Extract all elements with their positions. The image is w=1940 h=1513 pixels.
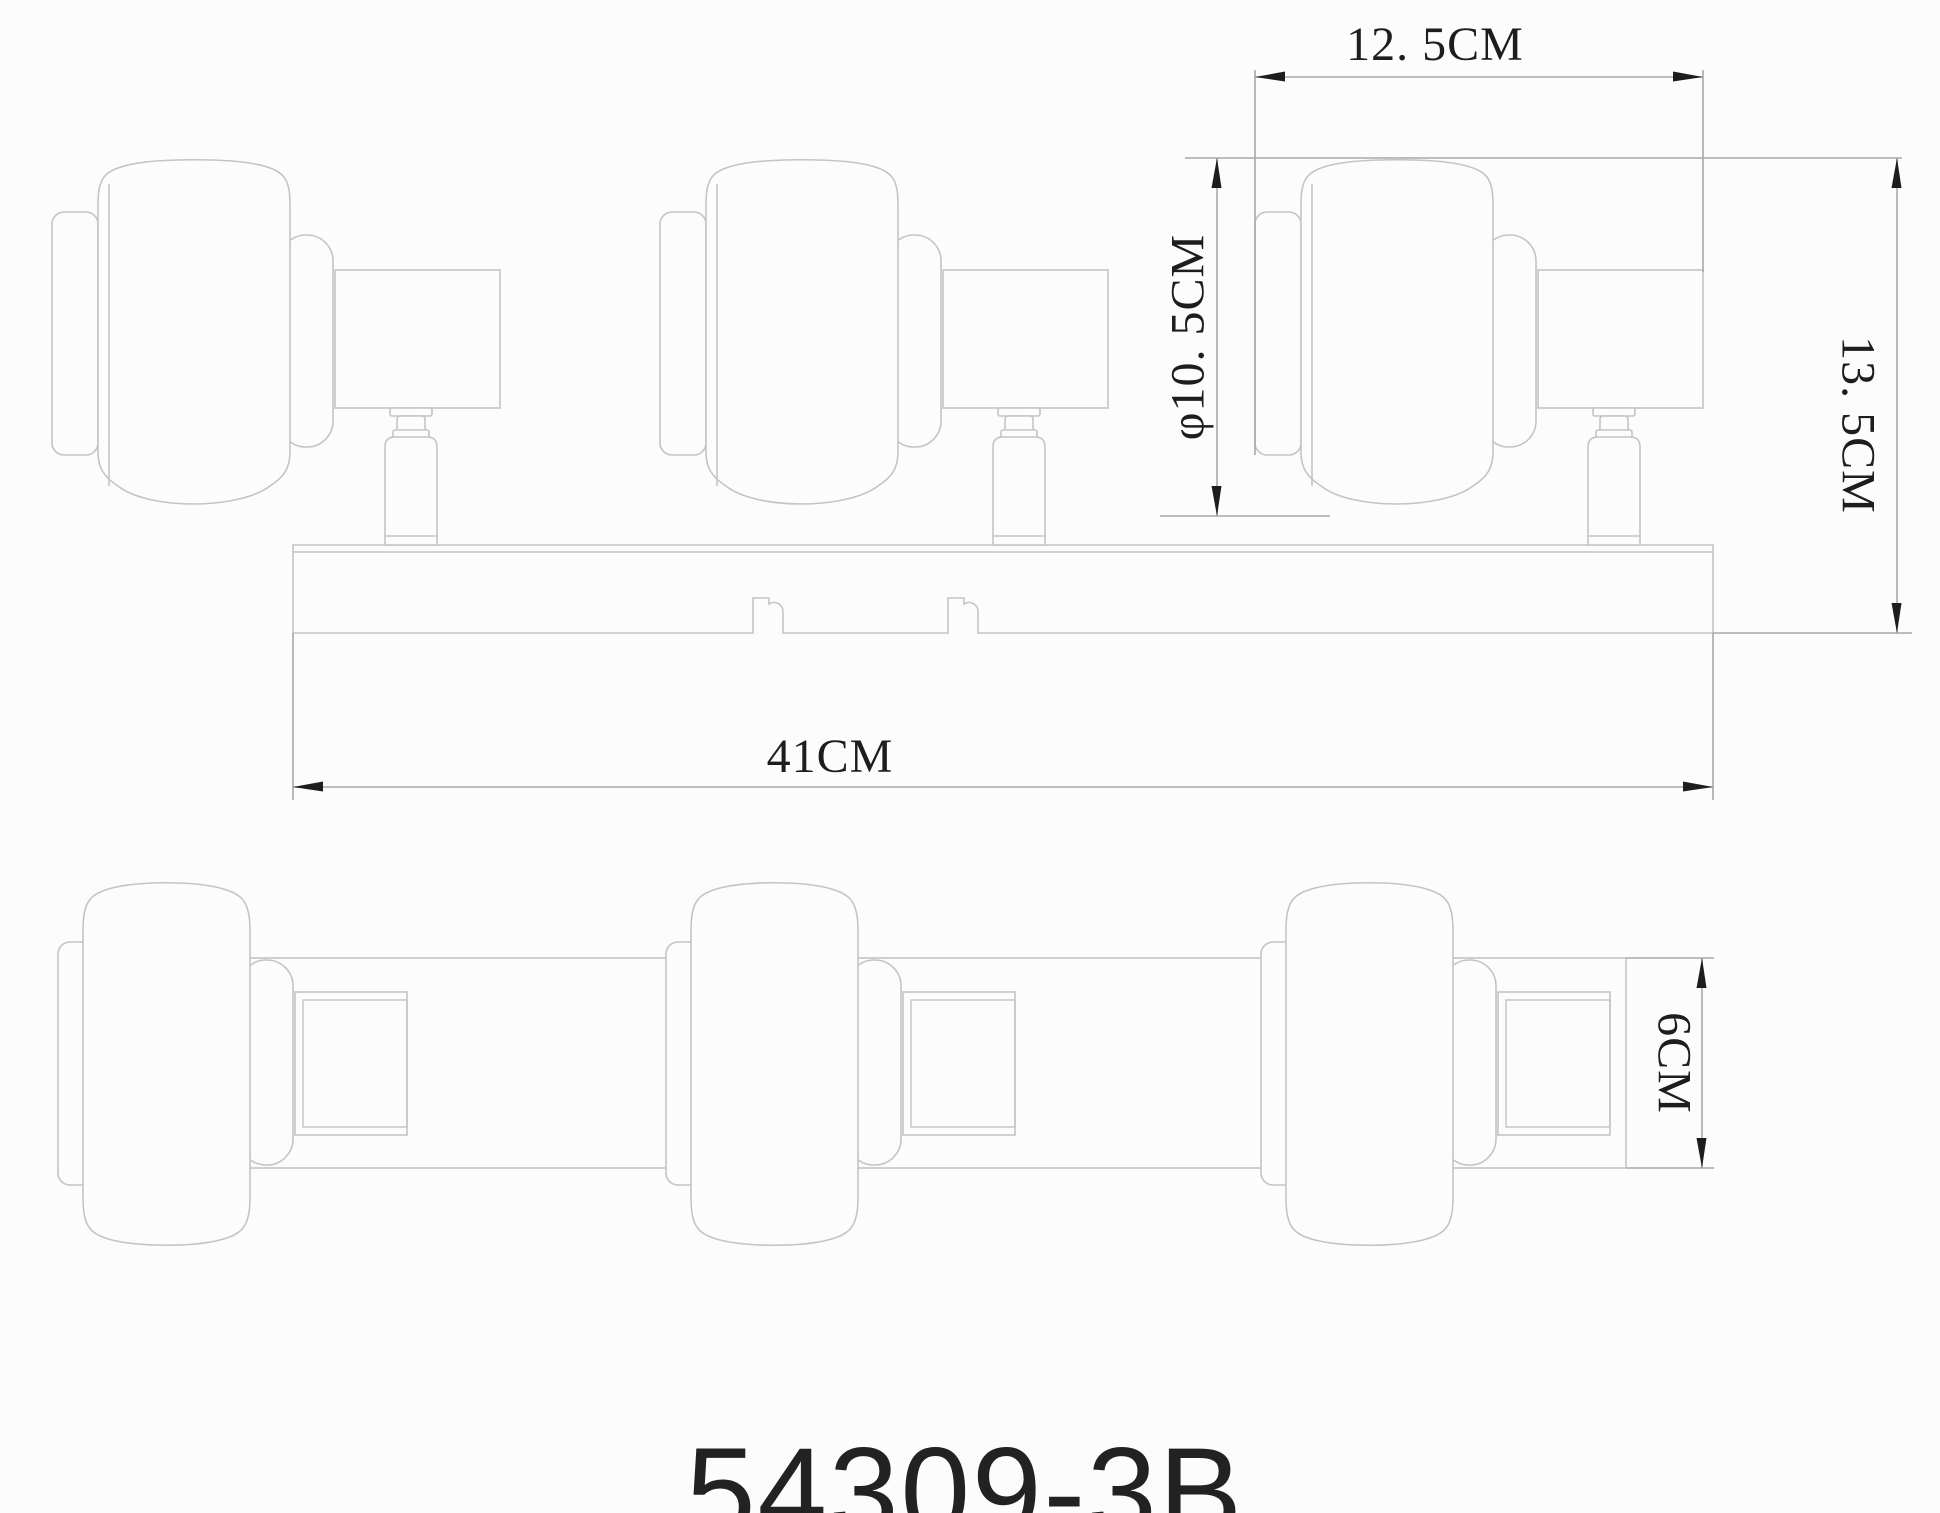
- dim-label-bar-depth: 6CM: [1648, 1012, 1701, 1114]
- dimension-drawing: 12. 5CM φ10. 5CM 13. 5CM 41CM 6CM 54309-…: [0, 0, 1940, 1513]
- model-number: 54309-3B: [686, 1423, 1244, 1513]
- dim-label-shade-diameter: φ10. 5CM: [1162, 234, 1215, 440]
- dim-label-unit-width: 12. 5CM: [1346, 18, 1524, 71]
- dim-label-fixture-height: 13. 5CM: [1832, 336, 1885, 514]
- drawing-page: 12. 5CM φ10. 5CM 13. 5CM 41CM 6CM 54309-…: [0, 0, 1940, 1513]
- drawing-linework: [52, 70, 1912, 1245]
- dim-label-bar-length: 41CM: [767, 730, 894, 783]
